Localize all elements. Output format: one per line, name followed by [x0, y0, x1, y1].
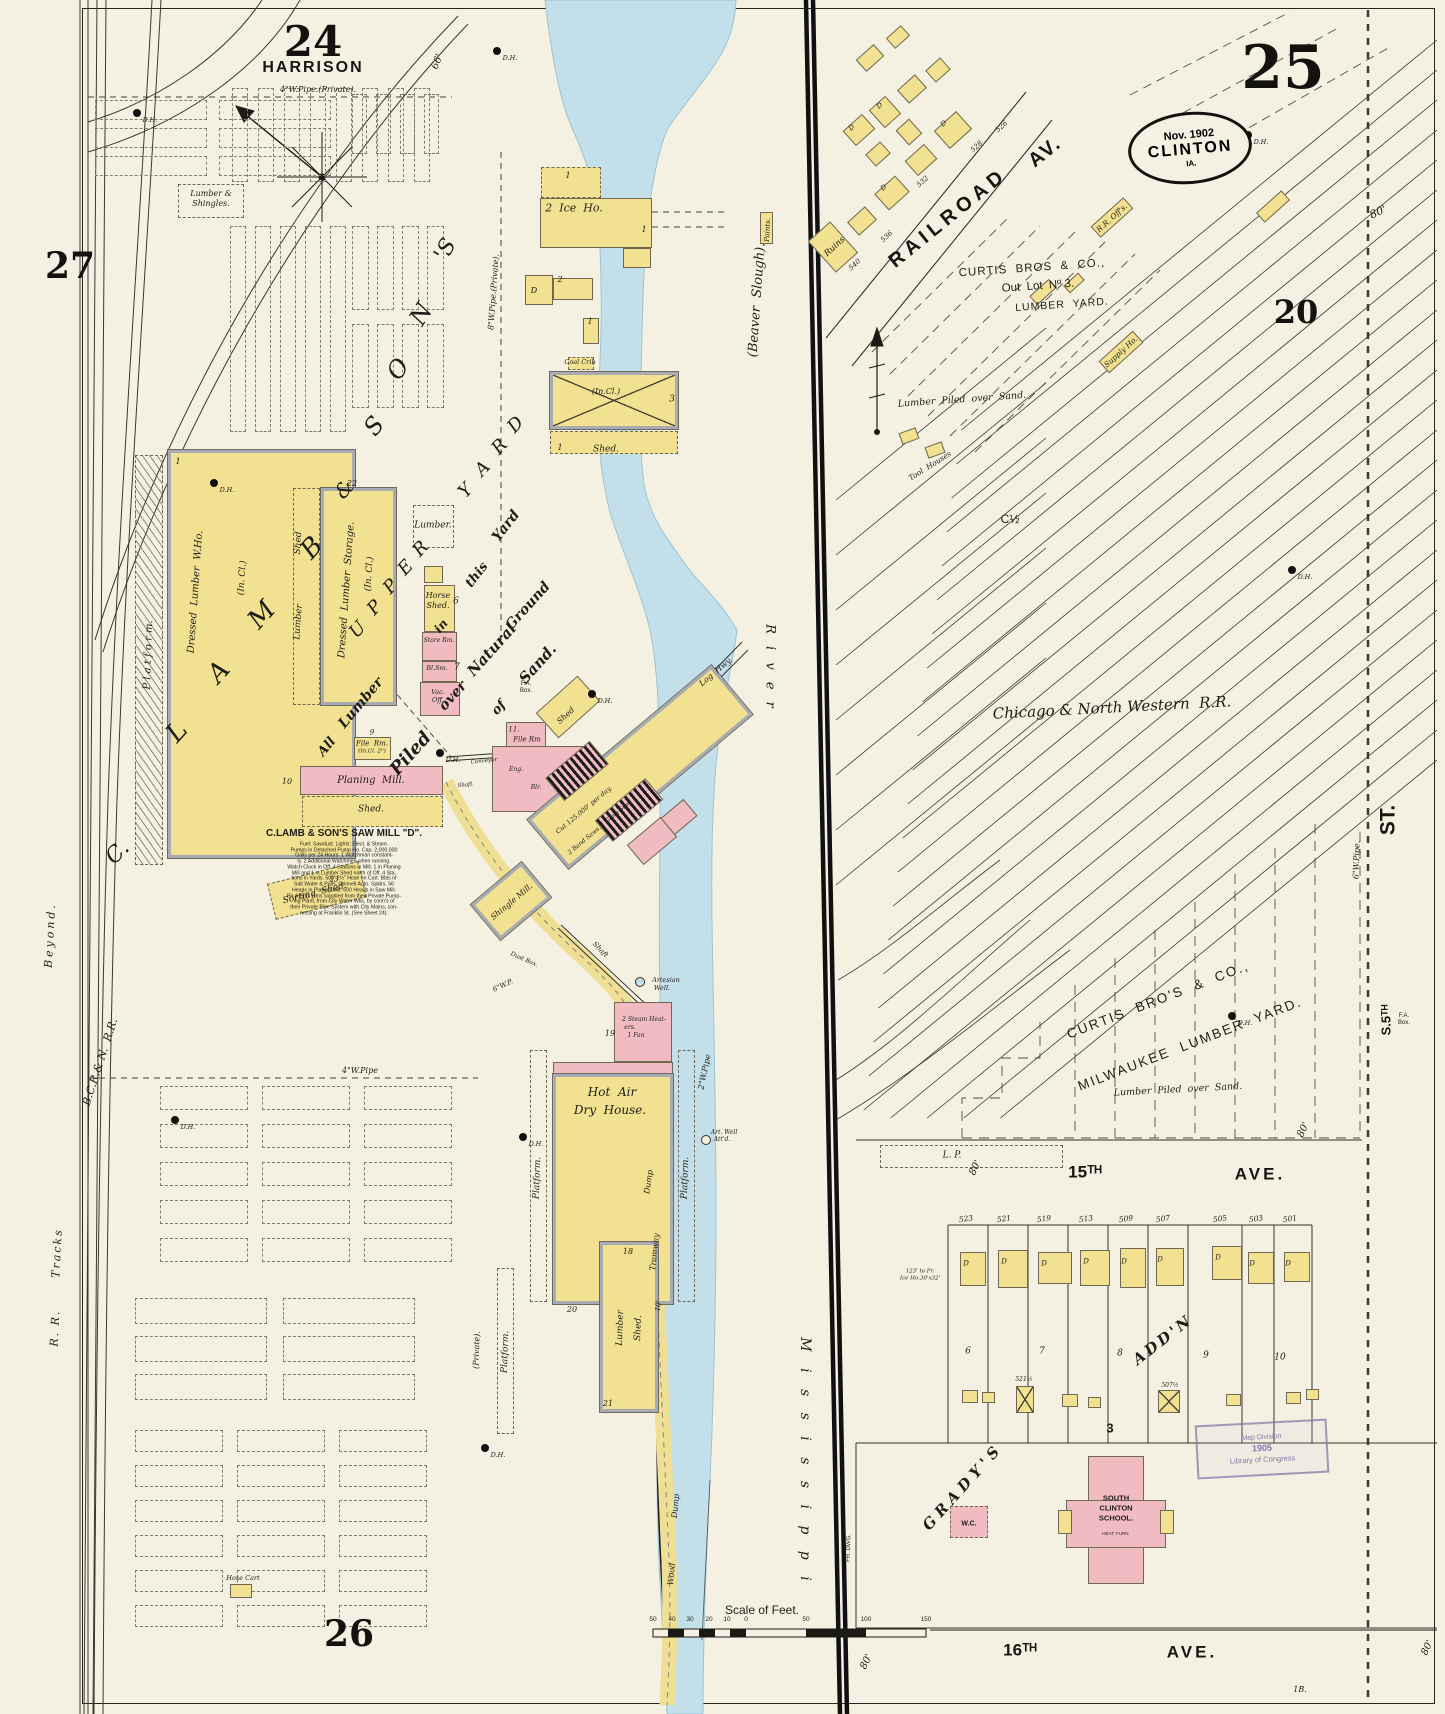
lumber-pile: [336, 88, 352, 182]
adjacent-sheet-20: 20: [1274, 296, 1319, 328]
lumber-pile: [135, 1500, 223, 1522]
lumber-pile: [232, 88, 248, 182]
library-of-congress-stamp: Map Division 1905 Library of Congress: [1195, 1419, 1330, 1480]
lumber-pile: [160, 1162, 248, 1186]
map-label: 2 Steam Heat-: [622, 1017, 666, 1023]
map-label: 521: [996, 1214, 1011, 1223]
dry-house-label: Hot Air: [588, 1086, 636, 1098]
dwelling: [960, 1252, 986, 1286]
map-label: 1: [641, 226, 646, 234]
map-label: 21: [603, 1400, 613, 1408]
map-label: File Rm: [513, 737, 541, 744]
map-label: CLINTON: [1099, 1504, 1132, 1512]
map-label: W.C.: [961, 1521, 976, 1528]
lumber-pile: [258, 88, 274, 182]
hydrant-dot: [436, 749, 444, 757]
hydrant-label: D.H.: [503, 55, 518, 62]
lumber-pile: [230, 226, 246, 432]
hydrant-label: D.H.: [181, 1124, 196, 1131]
railroad-turnouts: [836, 860, 1070, 1120]
map-label: Hose Cart: [226, 1575, 259, 1582]
map-label: Dry House.: [574, 1104, 646, 1116]
hydrant-label: D.H.: [1298, 574, 1313, 581]
map-label: 523: [958, 1214, 973, 1223]
hydrant-dot: [171, 1116, 179, 1124]
map-label: 3: [669, 396, 675, 405]
shed-with-cross: [550, 372, 678, 429]
map-label: 9: [370, 730, 374, 737]
map-label: Shed.: [634, 1315, 644, 1341]
lumber-pile: [330, 226, 346, 432]
street-and-lot-lines: [856, 1140, 1437, 1628]
lumber-pile: [339, 1570, 427, 1592]
map-label: 6: [453, 598, 459, 607]
map-label: 22: [347, 480, 357, 488]
map-label: D: [1157, 1257, 1163, 1264]
street-harrison: HARRISON: [262, 60, 363, 76]
lumber-pile: [364, 1162, 452, 1186]
building: [1160, 1510, 1174, 1534]
map-label: Lumber &: [190, 190, 231, 198]
hydrant-label: D.H.: [446, 757, 461, 764]
map-label: necting at Franklin St. (See Sheet 24).: [300, 911, 388, 916]
hydrant-label: D.H.: [529, 1141, 544, 1148]
loc-stamp-line: Map Division: [1241, 1433, 1281, 1442]
map-label: Horse: [426, 592, 450, 600]
dressed-lumber-storage: [321, 488, 396, 705]
map-label: FR. DWG.: [846, 1534, 853, 1562]
map-label: 2: [557, 276, 562, 284]
building: [982, 1392, 995, 1403]
map-label: Off.: [432, 697, 444, 704]
map-label: 123' to Fr.: [906, 1269, 935, 1275]
lumber-pile: [95, 156, 207, 176]
map-label: SCHOOL.: [1099, 1514, 1133, 1522]
map-label: D: [1083, 1259, 1089, 1266]
building: [962, 1390, 978, 1403]
map-label: Ice Ho.30'x32': [900, 1276, 940, 1282]
map-label: 521½: [1015, 1377, 1032, 1383]
map-label: ers.: [624, 1025, 635, 1031]
map-label: HEAT: FURN.: [1102, 1532, 1129, 1537]
map-label: Coal Crib: [564, 359, 595, 366]
lumber-pile: [160, 1124, 248, 1148]
lumber-pile: [237, 1535, 325, 1557]
map-label: F.A.: [521, 681, 531, 687]
lumber-pile: [135, 1298, 267, 1324]
lumber-pile: [283, 1298, 415, 1324]
map-label: 50: [802, 1617, 809, 1624]
lumber-pile: [339, 1465, 427, 1487]
hydrant-dot: [133, 109, 141, 117]
map-label: 1 Fan: [628, 1033, 645, 1039]
map-label: (In.Cl.): [592, 388, 620, 396]
hydrant-label: D.H.: [143, 117, 158, 124]
building: [424, 566, 443, 583]
building: [1088, 1397, 1101, 1408]
map-label: Shed.: [358, 806, 384, 815]
lumber-pile: [402, 226, 419, 310]
map-label: 6"W.Pipe.: [1352, 841, 1361, 880]
lumber-pile: [262, 1162, 350, 1186]
lumber-pile: [427, 324, 444, 408]
lumber-pile: [339, 1500, 427, 1522]
planing-mill-label: Planing Mill.: [337, 776, 405, 786]
lumber-pile: [400, 94, 415, 154]
lumber-pile: [237, 1430, 325, 1452]
dwelling: [1248, 1252, 1274, 1284]
stable: [1016, 1386, 1034, 1413]
lumber-pile: [135, 1430, 223, 1452]
lumber-pile: [377, 226, 394, 310]
lumber-pile: [352, 226, 369, 310]
lumber-pile: [364, 1200, 452, 1224]
adjacent-sheet-26: 26: [324, 1616, 374, 1652]
stable: [1158, 1390, 1180, 1413]
map-label: 11.: [508, 727, 519, 734]
scale-bar: [653, 1629, 1437, 1637]
hydrant-label: D.H.: [1254, 139, 1269, 146]
map-label: 18: [623, 1248, 633, 1256]
map-label: Box.: [520, 688, 532, 694]
street-15th-ave: 15ᵀᴴ: [1068, 1164, 1102, 1181]
map-label: 10': [655, 1300, 663, 1312]
artesian-well: [702, 1136, 711, 1145]
map-label: Platform.: [533, 1157, 543, 1200]
map-label: 7: [454, 664, 460, 673]
lumber-pile: [135, 1336, 267, 1362]
lumber-pile: [160, 1238, 248, 1262]
lumber-pile: [284, 88, 300, 182]
lumber-pile: [424, 94, 439, 154]
map-label: 7: [1039, 1348, 1045, 1357]
map-label: D: [1001, 1259, 1007, 1266]
lumber-pile: [283, 1374, 415, 1400]
map-label: 0: [744, 1617, 748, 1624]
map-label: Paints.: [764, 218, 772, 242]
building: [1286, 1392, 1301, 1404]
map-label: Artesian: [652, 977, 680, 984]
map-label: Lumber: [616, 1310, 626, 1346]
loc-stamp-line: Library of Congress: [1230, 1453, 1296, 1465]
stamp-state: IA.: [1186, 158, 1197, 168]
map-label: D: [963, 1261, 969, 1268]
lumber-pile: [135, 1605, 223, 1627]
lumber-pile: [135, 1535, 223, 1557]
map-label: 10: [1274, 1354, 1285, 1363]
lumber-pile: [283, 1336, 415, 1362]
map-label: 6: [965, 1348, 971, 1357]
artesian-well: [636, 978, 645, 987]
building: [1306, 1389, 1319, 1400]
map-label: Vac.: [431, 689, 445, 696]
lumber-pile: [135, 1374, 267, 1400]
lumber-pile: [237, 1500, 325, 1522]
map-label: Shed: [294, 531, 305, 555]
map-label: 30: [686, 1617, 693, 1624]
lumber-pile: [352, 94, 367, 154]
lumber-pile: [255, 226, 271, 432]
map-label: Lumber.: [414, 522, 452, 531]
lumber-pile: [160, 1200, 248, 1224]
map-label: D: [531, 287, 537, 295]
map-label: Well.: [654, 985, 670, 992]
hydrant-dot: [210, 479, 218, 487]
water-label-mississippi: M i s s i s s i p p i: [798, 1337, 812, 1586]
map-label: 100: [861, 1617, 872, 1624]
dwelling: [1120, 1248, 1146, 1288]
lumber-shed: [293, 488, 320, 705]
map-label: S.5ᵀᴴ: [1380, 1005, 1393, 1036]
map-label: AVE.: [1235, 1166, 1285, 1183]
map-label: AVE.: [1167, 1644, 1217, 1661]
map-label: Shed.: [426, 602, 449, 610]
dwelling: [998, 1250, 1028, 1288]
map-label: F.A.: [1399, 1013, 1409, 1019]
map-label: 8: [1117, 1350, 1123, 1359]
map-label: 513: [1078, 1214, 1093, 1223]
map-label: Tracks: [50, 1228, 64, 1278]
railroad-yard-fan: [836, 40, 1437, 1118]
map-label: Bl.Sm.: [426, 665, 448, 672]
map-label: 150: [921, 1617, 932, 1624]
map-label: 20: [705, 1617, 712, 1624]
map-label: Shingles.: [192, 200, 229, 208]
map-label: 9: [1203, 1352, 1209, 1361]
map-label: C½: [1001, 513, 1020, 525]
map-label: Eng.: [509, 767, 523, 773]
map-label: (In.Cl. 2ᴰ): [358, 749, 386, 755]
map-label: Platform.: [681, 1157, 691, 1200]
lumber-pile: [364, 1086, 452, 1110]
north-arrow: [869, 328, 885, 435]
map-label: 519: [1036, 1214, 1051, 1223]
map-label: Beyond.: [43, 902, 57, 969]
map-label: D: [1215, 1255, 1221, 1262]
map-label: Store Rm.: [424, 638, 455, 644]
hydrant-dot: [1288, 566, 1296, 574]
dwelling: [1156, 1248, 1184, 1286]
map-label: 4"W.Pipe: [342, 1067, 378, 1075]
scale-title: Scale of Feet.: [725, 1604, 799, 1616]
lumber-pile: [310, 88, 326, 182]
lumber-pile: [237, 1605, 325, 1627]
map-label: 19: [605, 1030, 615, 1038]
street-16th-ave: 16ᵀᴴ: [1003, 1642, 1037, 1659]
map-label: D: [1121, 1259, 1127, 1266]
dwelling: [1038, 1252, 1072, 1284]
school-label: SOUTH: [1103, 1494, 1129, 1502]
map-label: R. R.: [49, 1309, 62, 1347]
lumber-pile: [135, 1465, 223, 1487]
map-label: File Rm.: [356, 741, 388, 748]
sanborn-map-sheet: D.H.D.H.D.H.D.H.D.H.D.H.D.H.D.H.D.H.D.H.…: [0, 0, 1445, 1714]
map-label: 4"W.Pipe.(Private).: [280, 86, 356, 94]
map-label: Blr.: [531, 785, 541, 791]
lumber-pile: [262, 1200, 350, 1224]
lumber-pile: [339, 1535, 427, 1557]
loc-stamp-line: 1905: [1252, 1442, 1273, 1453]
hose-cart-house: [230, 1584, 252, 1598]
water-label-river: R i v e r: [764, 624, 777, 712]
hydrant-dot: [493, 47, 501, 55]
building: [1226, 1394, 1241, 1406]
map-label: 40: [668, 1617, 675, 1624]
hydrant-label: D.H.: [491, 1452, 506, 1459]
building: [623, 248, 651, 268]
lumber-pile: [376, 94, 391, 154]
dwelling: [1080, 1250, 1110, 1286]
lumber-pile: [262, 1124, 350, 1148]
lumber-pile: [364, 1238, 452, 1262]
hydrant-label: D.H.: [598, 698, 613, 705]
adjacent-sheet-27: 27: [45, 248, 95, 284]
map-label: 3: [1106, 1422, 1113, 1435]
saw-mill-title: C.LAMB & SON'S SAW MILL "D".: [266, 829, 422, 839]
building: [553, 1062, 673, 1074]
building: [525, 275, 553, 305]
map-label: (Private).: [472, 1331, 481, 1369]
map-label: D: [1285, 1261, 1291, 1268]
map-label: 501: [1282, 1214, 1297, 1223]
map-label: Att'd.: [714, 1137, 730, 1143]
lumber-pile: [95, 128, 207, 148]
map-label: L. P.: [943, 1152, 962, 1161]
map-label: D: [1249, 1261, 1255, 1268]
map-label: 1: [565, 172, 570, 180]
map-label: 1B.: [1293, 1686, 1307, 1694]
map-label: 505: [1212, 1214, 1227, 1223]
hydrant-dot: [519, 1133, 527, 1141]
ice-house-annex: [541, 167, 601, 198]
lumber-pile: [262, 1086, 350, 1110]
map-label: 509: [1118, 1214, 1133, 1223]
map-label: Platform.: [501, 1331, 511, 1374]
building: [1062, 1394, 1078, 1407]
map-label: 20: [567, 1306, 577, 1314]
adjacent-sheet-24: 24: [284, 21, 342, 63]
ice-house-label: 2 Ice Ho.: [545, 203, 603, 214]
street-s-5th: ST.: [1378, 805, 1399, 835]
lumber-pile: [339, 1430, 427, 1452]
map-label: 1: [175, 458, 180, 466]
sheet-number: 25: [1241, 38, 1325, 98]
hydrant-dot: [481, 1444, 489, 1452]
lumber-pile: [280, 226, 296, 432]
dwelling: [1212, 1246, 1242, 1280]
hydrant-label: D.H.: [220, 487, 235, 494]
lumber-pile: [352, 324, 369, 408]
lumber-pile: [135, 1570, 223, 1592]
building: [1058, 1510, 1072, 1534]
map-label: 507½: [1161, 1383, 1178, 1389]
map-label: D: [1041, 1261, 1047, 1268]
map-label: Box.: [1398, 1020, 1410, 1026]
lumber-pile: [305, 226, 321, 432]
map-label: Shed.: [593, 446, 619, 455]
map-label: 50: [649, 1617, 656, 1624]
hydrant-dot: [588, 690, 596, 698]
lumber-pile: [160, 1086, 248, 1110]
map-label: 10: [723, 1617, 730, 1624]
lumber-pile: [237, 1465, 325, 1487]
map-label: 10: [282, 778, 292, 786]
map-label: 1: [557, 444, 562, 452]
map-label: 507: [1155, 1214, 1170, 1223]
map-label: 1: [587, 318, 592, 326]
map-label: 503: [1248, 1214, 1263, 1223]
lumber-pile: [364, 1124, 452, 1148]
lumber-pile: [262, 1238, 350, 1262]
